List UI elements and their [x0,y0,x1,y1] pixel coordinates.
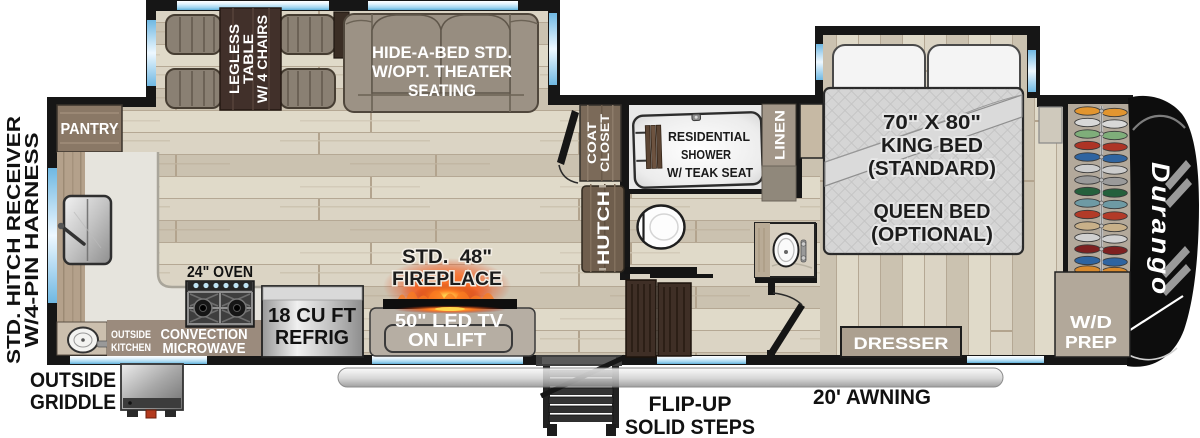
svg-text:HIDE-A-BED STD.: HIDE-A-BED STD. [372,43,512,62]
svg-text:STD. 48": STD. 48" [402,247,492,268]
svg-text:HUTCH: HUTCH [595,191,613,265]
svg-text:(OPTIONAL): (OPTIONAL) [871,224,993,246]
svg-text:FLIP-UP: FLIP-UP [649,392,732,416]
svg-text:PREP: PREP [1065,332,1117,352]
svg-text:KITCHEN: KITCHEN [111,342,151,354]
svg-text:SOLID STEPS: SOLID STEPS [625,415,755,438]
svg-text:REFRIG: REFRIG [275,326,349,349]
svg-text:DRESSER: DRESSER [854,335,949,353]
svg-text:20' AWNING: 20' AWNING [813,386,931,409]
svg-text:SHOWER: SHOWER [681,147,732,162]
svg-text:PANTRY: PANTRY [61,121,119,138]
svg-text:GRIDDLE: GRIDDLE [30,391,116,414]
svg-text:LINEN: LINEN [773,110,788,160]
svg-text:W/OPT. THEATER: W/OPT. THEATER [372,62,512,81]
svg-text:Durango: Durango [1146,162,1174,297]
svg-text:18 CU FT: 18 CU FT [268,304,356,327]
svg-text:24" OVEN: 24" OVEN [187,264,253,281]
svg-text:COATCLOSET: COATCLOSET [585,113,612,172]
svg-text:MICROWAVE: MICROWAVE [163,341,246,357]
svg-text:70" X 80": 70" X 80" [883,112,981,134]
svg-text:KING BED: KING BED [881,135,983,157]
svg-text:W/D: W/D [1070,312,1112,332]
svg-text:W/ TEAK SEAT: W/ TEAK SEAT [667,165,753,180]
svg-text:(STANDARD): (STANDARD) [868,158,996,180]
svg-text:W/4-PIN HARNESS: W/4-PIN HARNESS [22,133,42,348]
svg-text:QUEEN BED: QUEEN BED [874,201,991,223]
svg-text:OUTSIDE: OUTSIDE [30,369,116,392]
svg-text:SEATING: SEATING [408,81,476,100]
svg-text:STD. HITCH RECEIVER: STD. HITCH RECEIVER [4,116,24,364]
svg-text:FIREPLACE: FIREPLACE [392,269,502,290]
svg-text:50" LED TV: 50" LED TV [395,311,503,331]
svg-text:RESIDENTIAL: RESIDENTIAL [668,129,750,144]
svg-text:OUTSIDE: OUTSIDE [111,329,151,341]
svg-text:ON LIFT: ON LIFT [408,330,486,350]
